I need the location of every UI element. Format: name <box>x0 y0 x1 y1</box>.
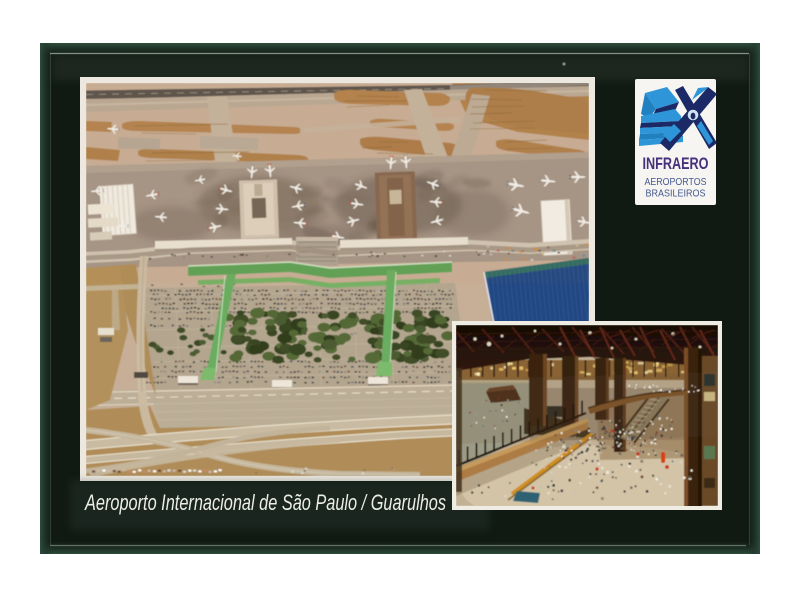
svg-text:AEROPORTOS: AEROPORTOS <box>645 177 707 188</box>
svg-text:BRASILEIROS: BRASILEIROS <box>646 189 706 200</box>
svg-text:INFRAERO: INFRAERO <box>643 155 709 173</box>
svg-text:Aeroporto Internacional de São: Aeroporto Internacional de São Paulo / G… <box>84 490 446 515</box>
